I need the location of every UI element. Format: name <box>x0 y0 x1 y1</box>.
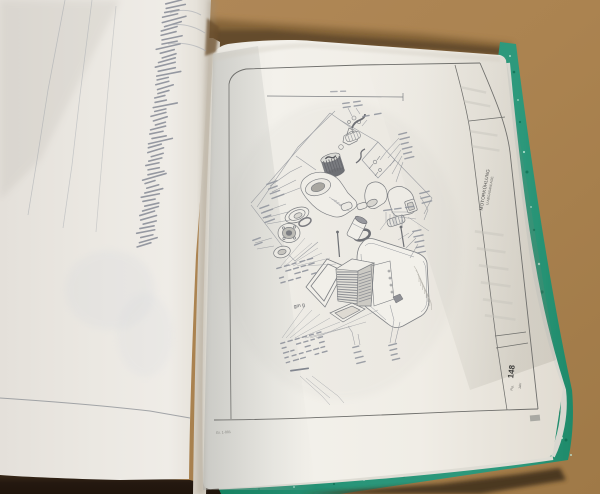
svg-text:148: 148 <box>506 364 517 379</box>
svg-text:Fig.: Fig. <box>510 385 515 391</box>
